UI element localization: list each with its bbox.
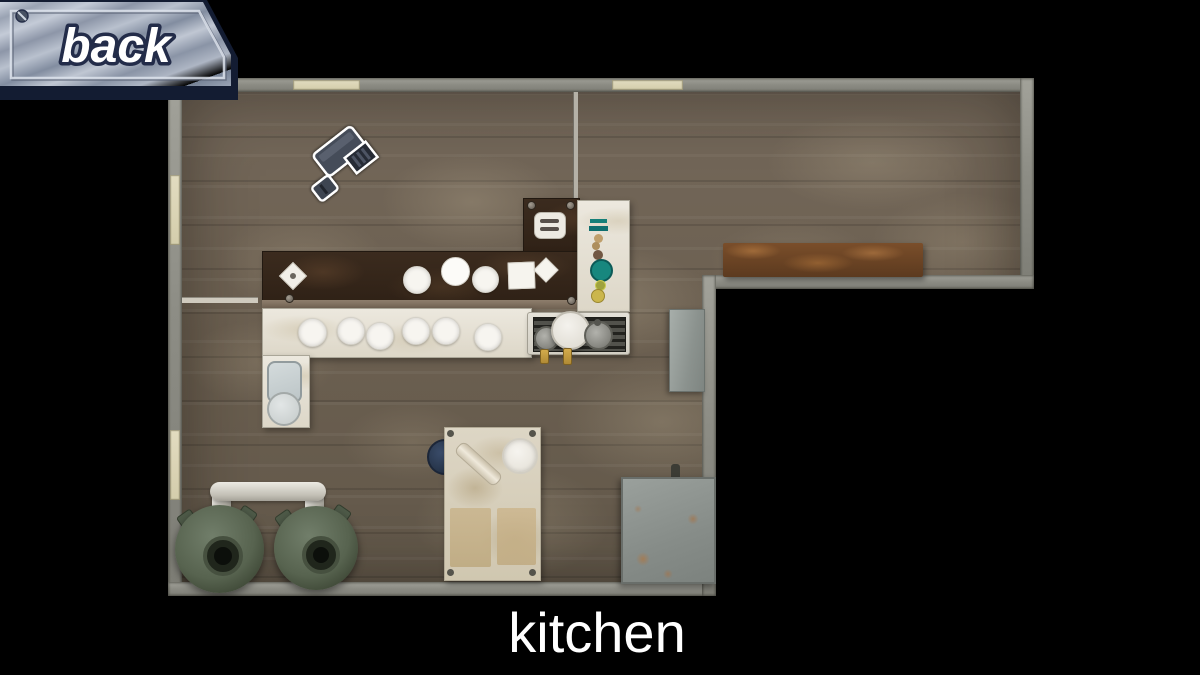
wall-inner-horizontal [702, 275, 1034, 289]
table-corner [447, 430, 454, 437]
security-camera-icon[interactable] [295, 112, 395, 207]
round-plate [472, 266, 499, 293]
round-plate [403, 266, 431, 294]
bolt [527, 201, 536, 210]
kettle-left [175, 505, 264, 593]
back-button[interactable]: back [0, 0, 240, 100]
kitchen-map [0, 0, 1200, 675]
toaster-slot [540, 219, 559, 223]
table-corner [529, 569, 536, 576]
pot-handle [594, 319, 601, 326]
back-label: back [61, 20, 173, 73]
round-plate [441, 257, 470, 286]
sink-pot [267, 392, 301, 426]
toaster [534, 212, 566, 239]
kettle-hole [313, 547, 329, 563]
spice-dot [592, 242, 600, 250]
plate [474, 323, 502, 351]
bolt [566, 201, 575, 210]
kettle-opening [203, 536, 243, 576]
door-opening-top-1 [293, 80, 360, 90]
bolt [285, 294, 294, 303]
gray-pot [584, 321, 613, 350]
mixing-bowl [502, 438, 538, 474]
table-corner [529, 430, 536, 437]
baking-tray [450, 508, 491, 567]
partition-rail [182, 297, 258, 303]
teal-jar-lid [589, 226, 608, 231]
wall-right [1020, 78, 1034, 289]
toaster-slot [540, 227, 559, 231]
wall-shelf [723, 243, 923, 277]
door-opening-top-2 [612, 80, 683, 90]
door-opening-left-1 [170, 175, 180, 245]
work-table [444, 427, 541, 581]
kettle-opening [302, 536, 340, 574]
room-name-label: kitchen [447, 600, 747, 665]
plate [432, 317, 460, 345]
game-screen: back kitchen [0, 0, 1200, 675]
table-corner [447, 569, 454, 576]
plate [337, 317, 365, 345]
partition-pole [573, 92, 578, 200]
door-opening-left-2 [170, 430, 180, 500]
gas-knob [540, 349, 549, 364]
gas-pipe [210, 482, 326, 501]
gas-knob [563, 348, 572, 365]
plate [366, 322, 394, 350]
mustard-jar [591, 289, 605, 303]
back-button-graphic: back [0, 0, 240, 100]
square-plate [508, 262, 536, 290]
bolt [567, 296, 576, 305]
wall-bottom [168, 582, 716, 596]
teal-jar [590, 259, 613, 282]
kettle-right [274, 506, 358, 590]
baking-tray [497, 508, 536, 565]
plate [402, 317, 430, 345]
kettle-hole [214, 547, 232, 565]
refrigerator-block [669, 309, 705, 392]
plate [298, 318, 327, 347]
plate-center [289, 272, 297, 280]
metal-crate [621, 477, 716, 584]
teal-jar-lid [590, 219, 607, 223]
rolling-pin [453, 440, 503, 487]
